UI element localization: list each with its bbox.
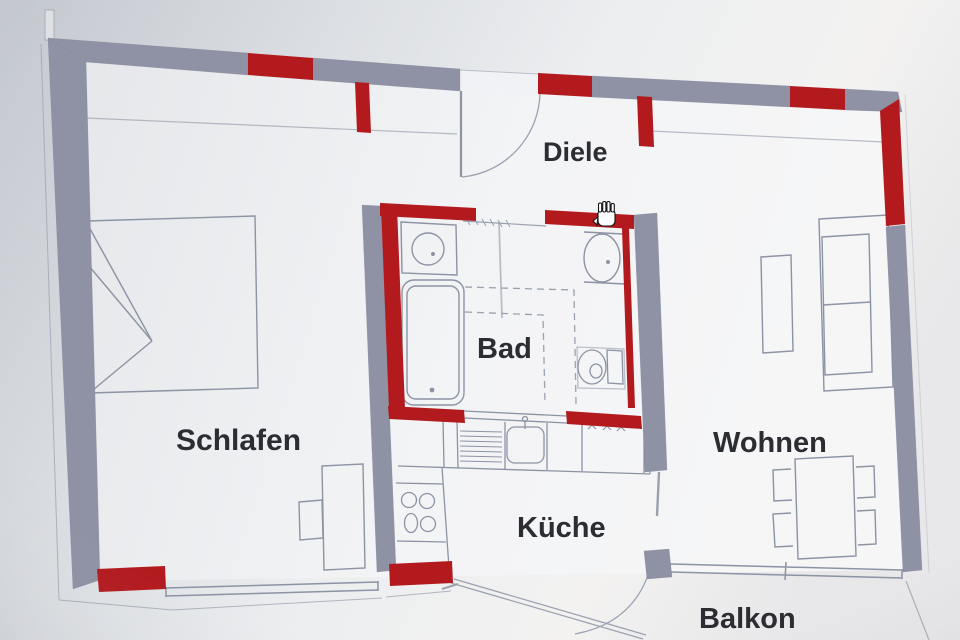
room-label-diele: Diele: [543, 137, 608, 167]
red-stub-schlafen-diele: [355, 82, 371, 133]
roof-pipe: [45, 10, 54, 40]
interior-floor: [86, 62, 903, 581]
room-label-bad: Bad: [477, 333, 532, 365]
room-label-balkon: Balkon: [699, 603, 796, 635]
red-bottom-kueche: [389, 561, 453, 586]
red-top-diele: [538, 73, 592, 97]
red-stub-diele-wohnen: [637, 96, 654, 147]
room-label-kueche: Küche: [517, 512, 606, 544]
floorplan-svg: Schlafen Diele Bad Küche Wohnen Balkon: [0, 0, 960, 640]
pillar-balcony-door: [644, 549, 672, 579]
room-label-wohnen: Wohnen: [713, 427, 827, 459]
room-label-schlafen: Schlafen: [176, 424, 301, 457]
red-top-wohnen: [790, 86, 845, 110]
red-bottom-schlafen: [97, 566, 166, 592]
floorplan-photo: Schlafen Diele Bad Küche Wohnen Balkon: [0, 0, 960, 640]
